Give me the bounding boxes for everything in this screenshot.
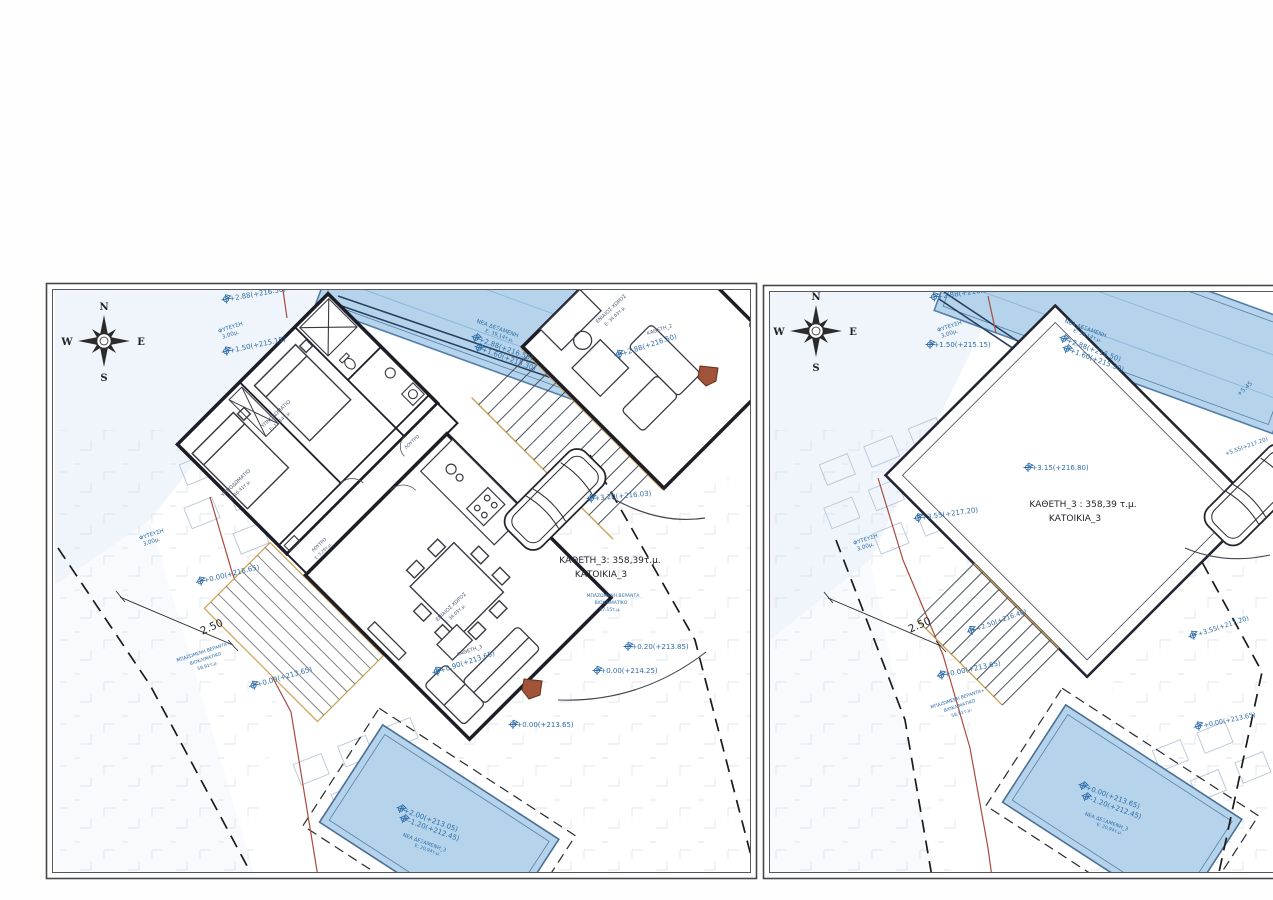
scanned-plan-page: N S E W [0,0,1273,900]
annotation-title-line2: ΚΑΤΟΙΚΙΑ_3 [1049,514,1101,524]
annotation-label: +1.50(+215.15) [933,341,991,349]
annotation-title-line1: ΚΑΘΕΤΗ_3 : 358,39 τ.μ. [1029,500,1136,510]
annotation-title-line1: ΚΑΘΕΤΗ_3: 358,39τ.μ. [559,556,661,566]
annotation-label: +0.20(+213.85) [631,643,689,651]
annotation-label: ΜΠΑΖΩΜΕΝΗ ΒΕΡΑΝΤΑ [587,593,641,599]
annotation-title-line2: ΚΑΤΟΙΚΙΑ_3 [575,570,627,580]
site-plan-drawing: N S E W [0,0,1273,900]
right-panel: +2.88(+216.50)ΦΥΤΕΥΣΗ3,00μ.+1.50(+215.15… [764,205,1273,900]
annotation-label: 47,15τ.μ. [599,607,620,613]
annotation-label: +3.15(+216.80) [1031,464,1089,472]
left-panel: +2.88(+216.50)ΦΥΤΕΥΣΗ3,00μ.+1.50(+215.15… [47,96,820,900]
annotation-label: +0.00(+213.65) [516,721,574,729]
annotation-label: ΒΙΟΚΛΙΜΑΤΙΚΟ [595,600,628,606]
annotation-label: +0.00(+214.25) [600,667,658,675]
